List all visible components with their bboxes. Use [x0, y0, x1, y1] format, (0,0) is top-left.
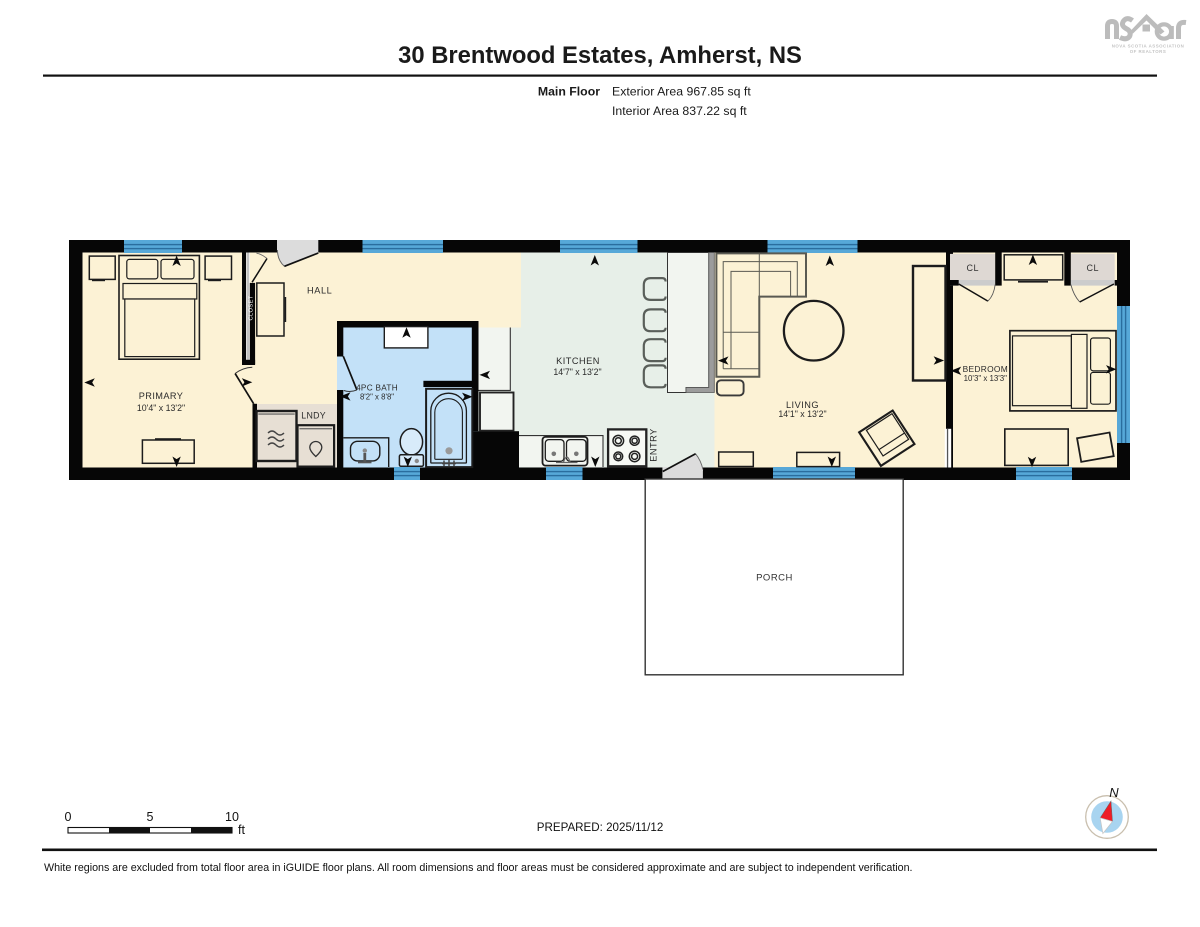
svg-text:N: N: [1109, 785, 1119, 800]
svg-text:ENTRY: ENTRY: [649, 428, 659, 461]
svg-text:8'2" x 8'8": 8'2" x 8'8": [360, 392, 394, 401]
svg-text:PRIMARY: PRIMARY: [139, 391, 184, 401]
svg-text:White regions are excluded fro: White regions are excluded from total fl…: [44, 862, 913, 874]
svg-text:10'4" x 13'2": 10'4" x 13'2": [137, 403, 185, 413]
svg-text:Main Floor: Main Floor: [538, 85, 600, 99]
svg-text:Exterior Area 967.85 sq ft: Exterior Area 967.85 sq ft: [612, 85, 751, 99]
svg-text:NOVA SCOTIA ASSOCIATION: NOVA SCOTIA ASSOCIATION: [1112, 44, 1185, 49]
svg-text:HALL: HALL: [307, 285, 332, 295]
svg-text:10'3" x 13'3": 10'3" x 13'3": [964, 374, 1007, 383]
svg-text:0: 0: [65, 810, 72, 824]
svg-text:OF REALTORS: OF REALTORS: [1130, 49, 1167, 54]
svg-text:30 Brentwood Estates, Amherst,: 30 Brentwood Estates, Amherst, NS: [398, 42, 802, 69]
svg-text:CL: CL: [1087, 263, 1100, 273]
svg-text:CLOSET: CLOSET: [249, 295, 255, 320]
svg-text:10: 10: [225, 810, 239, 824]
svg-text:PORCH: PORCH: [756, 573, 793, 584]
svg-text:BEDROOM: BEDROOM: [963, 364, 1008, 374]
svg-text:14'7" x 13'2": 14'7" x 13'2": [553, 367, 601, 377]
svg-text:ft: ft: [238, 823, 245, 837]
svg-text:KITCHEN: KITCHEN: [556, 356, 600, 366]
svg-text:CL: CL: [967, 263, 980, 273]
svg-text:PREPARED: 2025/11/12: PREPARED: 2025/11/12: [537, 821, 664, 834]
svg-text:5: 5: [147, 810, 154, 824]
svg-text:Interior Area 837.22 sq ft: Interior Area 837.22 sq ft: [612, 104, 747, 118]
svg-text:LNDY: LNDY: [301, 411, 326, 421]
svg-text:4PC BATH: 4PC BATH: [356, 383, 398, 392]
svg-text:14'1" x 13'2": 14'1" x 13'2": [778, 409, 826, 419]
